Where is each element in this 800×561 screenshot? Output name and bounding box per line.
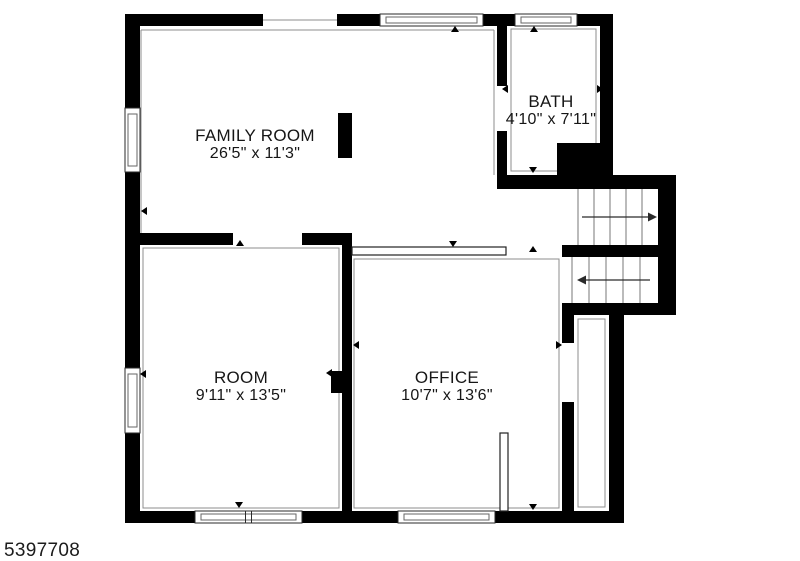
floorplan-page: FAMILY ROOM 26'5" x 11'3" BATH 4'10" x 7…	[0, 0, 800, 561]
room-dims: 9'11" x 13'5"	[196, 387, 286, 405]
window	[125, 368, 140, 433]
window	[125, 108, 140, 172]
door-marker-icon	[529, 246, 537, 252]
wall-segment	[600, 14, 613, 147]
wall-segment	[562, 245, 658, 257]
wall-segment	[125, 172, 140, 368]
listing-id: 5397708	[4, 540, 80, 561]
wall-segment	[338, 113, 352, 158]
door-marker-icon	[529, 167, 537, 173]
room-label-bath: BATH 4'10" x 7'11"	[506, 93, 596, 129]
door-marker-icon	[449, 241, 457, 247]
room-dims: 10'7" x 13'6"	[401, 387, 493, 405]
wall-segment	[125, 511, 195, 523]
window	[380, 14, 483, 26]
door-marker-icon	[235, 502, 243, 508]
door-marker-icon	[529, 504, 537, 510]
window	[398, 511, 495, 523]
wall-segment	[609, 303, 624, 523]
window	[515, 14, 577, 26]
room-outline	[578, 319, 605, 507]
wall-segment	[125, 14, 263, 26]
wall-segment	[125, 233, 233, 245]
stair-direction-arrow-icon	[648, 213, 657, 222]
wall-segment	[658, 177, 676, 315]
wall-segment	[331, 371, 352, 393]
window	[195, 511, 302, 523]
wall-segment	[497, 14, 507, 86]
room-dims: 26'5" x 11'3"	[195, 145, 315, 163]
wall-segment	[337, 14, 380, 26]
room-name: ROOM	[196, 369, 286, 387]
wall-segment	[125, 14, 140, 108]
railing-bar	[352, 247, 506, 255]
room-name: FAMILY ROOM	[195, 127, 315, 145]
room-label-office: OFFICE 10'7" x 13'6"	[401, 369, 493, 405]
stair-direction-arrow-icon	[577, 276, 586, 285]
wall-segment	[497, 131, 507, 177]
door-marker-icon	[502, 85, 508, 93]
railing-bar	[500, 433, 508, 511]
room-label-family-room: FAMILY ROOM 26'5" x 11'3"	[195, 127, 315, 163]
wall-segment	[557, 143, 613, 189]
room-label-room: ROOM 9'11" x 13'5"	[196, 369, 286, 405]
wall-segment	[125, 433, 140, 523]
door-marker-icon	[326, 369, 332, 377]
room-dims: 4'10" x 7'11"	[506, 111, 596, 129]
door-marker-icon	[451, 26, 459, 32]
floorplan-canvas	[0, 0, 800, 561]
door-marker-icon	[236, 240, 244, 246]
room-name: OFFICE	[401, 369, 493, 387]
wall-segment	[562, 402, 574, 512]
wall-segment	[562, 303, 574, 343]
door-marker-icon	[141, 207, 147, 215]
room-name: BATH	[506, 93, 596, 111]
wall-segment	[495, 511, 624, 523]
